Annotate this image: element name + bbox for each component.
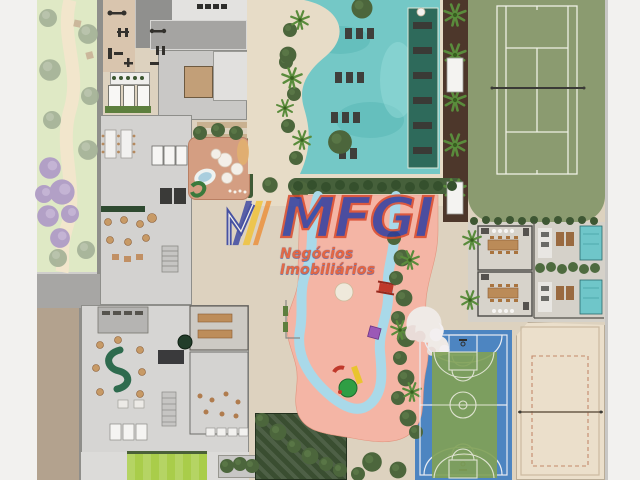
watermark: MFGI Negócios Imobiliários [224, 192, 444, 278]
wood-floor-room [184, 66, 213, 98]
clubhouse-north-wing [172, 0, 247, 22]
basketball-court [415, 330, 512, 480]
pool-deck [247, 0, 468, 206]
kids-playground [188, 137, 250, 200]
white-room [213, 51, 248, 101]
canopy [137, 85, 150, 108]
residential-tower-roof [37, 308, 81, 480]
clubhouse-roof [150, 20, 247, 50]
brand-tagline: Negócios Imobiliários [280, 246, 444, 278]
park-garden [37, 0, 103, 274]
canopy [123, 85, 136, 108]
beach-volleyball-court [516, 322, 605, 480]
mfgi-logo-icon [224, 192, 275, 254]
site-plan-rendering: MFGI Negócios Imobiliários [0, 0, 640, 480]
white-canopies [108, 85, 150, 108]
clubhouse-upper-rooms [158, 50, 247, 120]
planter-row [110, 72, 150, 85]
watermark-text: MFGI Negócios Imobiliários [280, 192, 444, 278]
clubhouse-lounge-rooms [100, 115, 192, 305]
bbq-pavilion-zone [468, 222, 605, 322]
east-boundary-wall [605, 0, 608, 480]
tennis-court [468, 0, 605, 222]
dense-garden-rows [255, 413, 347, 480]
flat-roof-strip [37, 272, 103, 308]
clubhouse-lower-rooms [81, 305, 249, 455]
outdoor-gym [103, 0, 135, 72]
sports-lawn [127, 451, 207, 480]
hedge-planter [105, 106, 151, 113]
brand-name: MFGI [280, 192, 444, 245]
canopy [108, 85, 121, 108]
